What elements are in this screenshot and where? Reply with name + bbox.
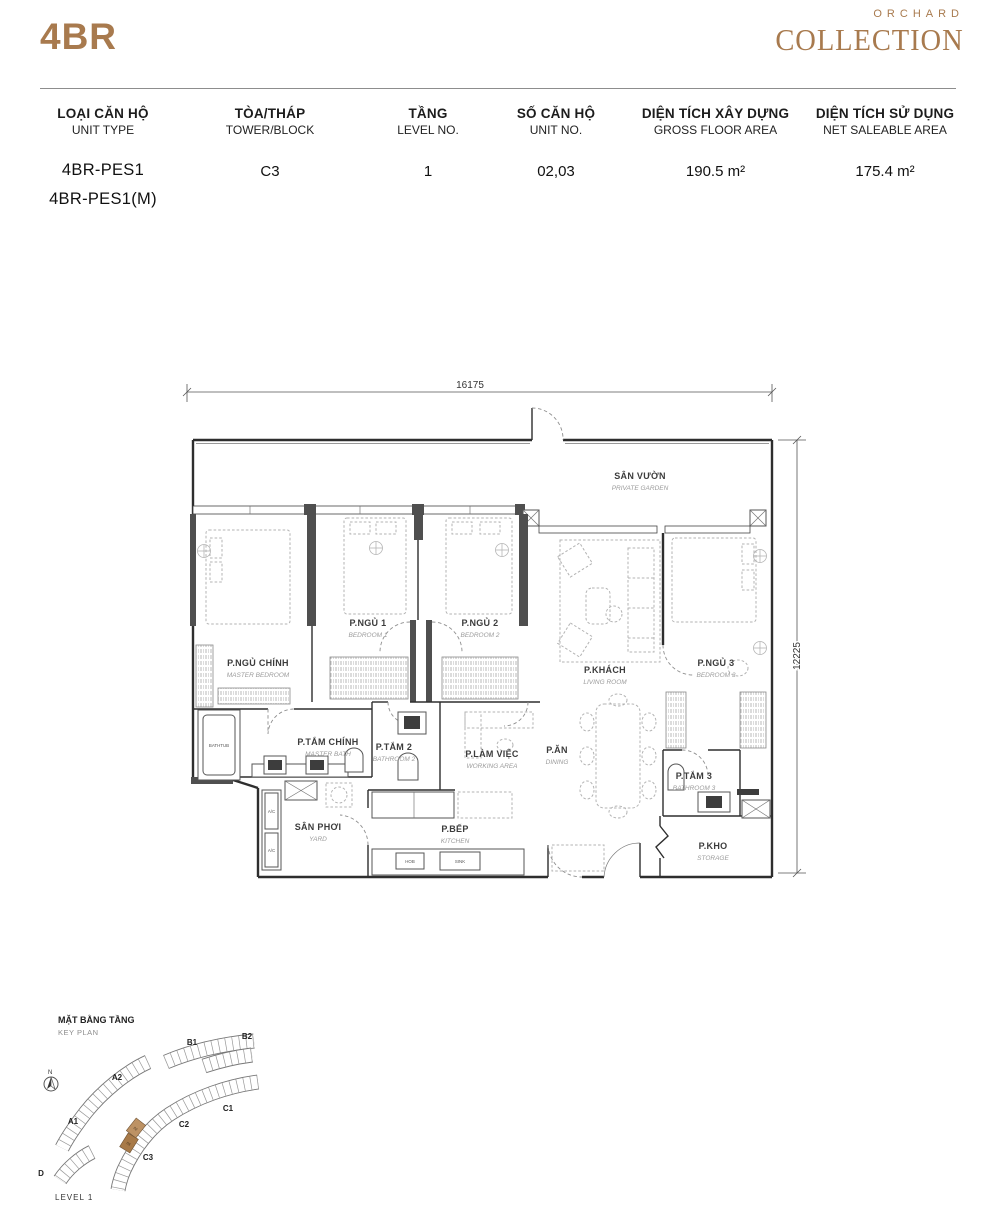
block-label-c1: C1 (223, 1104, 234, 1113)
block-band-D (60, 1152, 92, 1180)
room-bath3-en: BATHROOM 3 (673, 785, 716, 792)
block-label-a2: A2 (112, 1073, 123, 1082)
room-dining-en: DINING (546, 759, 569, 766)
key-plan-title-vi: MẶT BẰNG TẦNG (58, 1015, 135, 1025)
room-storage-en: STORAGE (697, 855, 729, 862)
room-working-en: WORKING AREA (466, 763, 517, 770)
room-bath2-en: BATHROOM 2 (373, 756, 416, 763)
floor-plan-sheet: 4BR ORCHARD COLLECTION LOẠI CĂN HỘ UNIT … (0, 0, 996, 1230)
room-masterbath-en: MASTER BATH (305, 751, 351, 758)
room-bed2-vi: P.NGỦ 2 (462, 617, 499, 628)
room-bed3-en: BEDROOM 3 (696, 672, 735, 679)
room-bed2-en: BEDROOM 2 (460, 632, 499, 639)
room-garden-vi: SÂN VƯỜN (614, 470, 666, 481)
block-label-d: D (38, 1169, 44, 1178)
dim-height-label: 12225 (792, 642, 803, 670)
key-plan: MẶT BẰNG TẦNG KEY PLAN N (38, 1015, 258, 1202)
room-garden-en: PRIVATE GARDEN (612, 485, 669, 492)
room-bed3-vi: P.NGỦ 3 (698, 657, 735, 668)
dim-width-label: 16175 (456, 380, 484, 391)
room-bath2-vi: P.TẮM 2 (376, 742, 412, 752)
key-plan-level-label: LEVEL 1 (55, 1193, 93, 1202)
room-yard-vi: SÂN PHƠI (295, 821, 342, 832)
key-plan-title-en: KEY PLAN (58, 1028, 99, 1037)
hob-label: HOB (405, 859, 415, 864)
room-kitchen-vi: P.BẾP (441, 824, 468, 834)
sink-label: SINK (455, 859, 465, 864)
floor-plan-drawing: 16175 12225 (0, 0, 996, 1230)
block-label-a1: A1 (68, 1117, 79, 1126)
room-yard-en: YARD (309, 836, 327, 843)
room-bath3-vi: P.TẮM 3 (676, 771, 712, 781)
room-storage-vi: P.KHO (699, 841, 728, 851)
ac-label-2: A/C (268, 848, 275, 853)
room-kitchen-en: KITCHEN (441, 838, 470, 845)
room-master-vi: P.NGỦ CHÍNH (227, 657, 289, 668)
block-label-b1: B1 (187, 1038, 198, 1047)
room-bed1-en: BEDROOM 1 (348, 632, 387, 639)
north-label: N (48, 1070, 52, 1076)
room-bed1-vi: P.NGỦ 1 (350, 617, 387, 628)
block-label-c2: C2 (179, 1120, 190, 1129)
room-master-en: MASTER BEDROOM (227, 672, 290, 679)
key-plan-blocks: 02 03 A1 A2 B1 B2 C1 C2 C3 D (38, 1032, 258, 1190)
ac-label-1: A/C (268, 809, 275, 814)
interior-doors (268, 622, 708, 845)
bathtub-label: BATHTUB (209, 743, 229, 748)
room-dining-vi: P.ĂN (546, 745, 568, 755)
north-compass-icon: N (44, 1070, 58, 1091)
room-living-vi: P.KHÁCH (584, 665, 626, 675)
block-band-C (118, 1082, 258, 1190)
block-band-B (166, 1041, 254, 1066)
room-working-vi: P.LÀM VIỆC (465, 748, 519, 759)
block-label-c3: C3 (143, 1153, 154, 1162)
block-label-b2: B2 (242, 1032, 253, 1041)
room-living-en: LIVING ROOM (583, 679, 627, 686)
room-masterbath-vi: P.TẮM CHÍNH (297, 737, 358, 747)
